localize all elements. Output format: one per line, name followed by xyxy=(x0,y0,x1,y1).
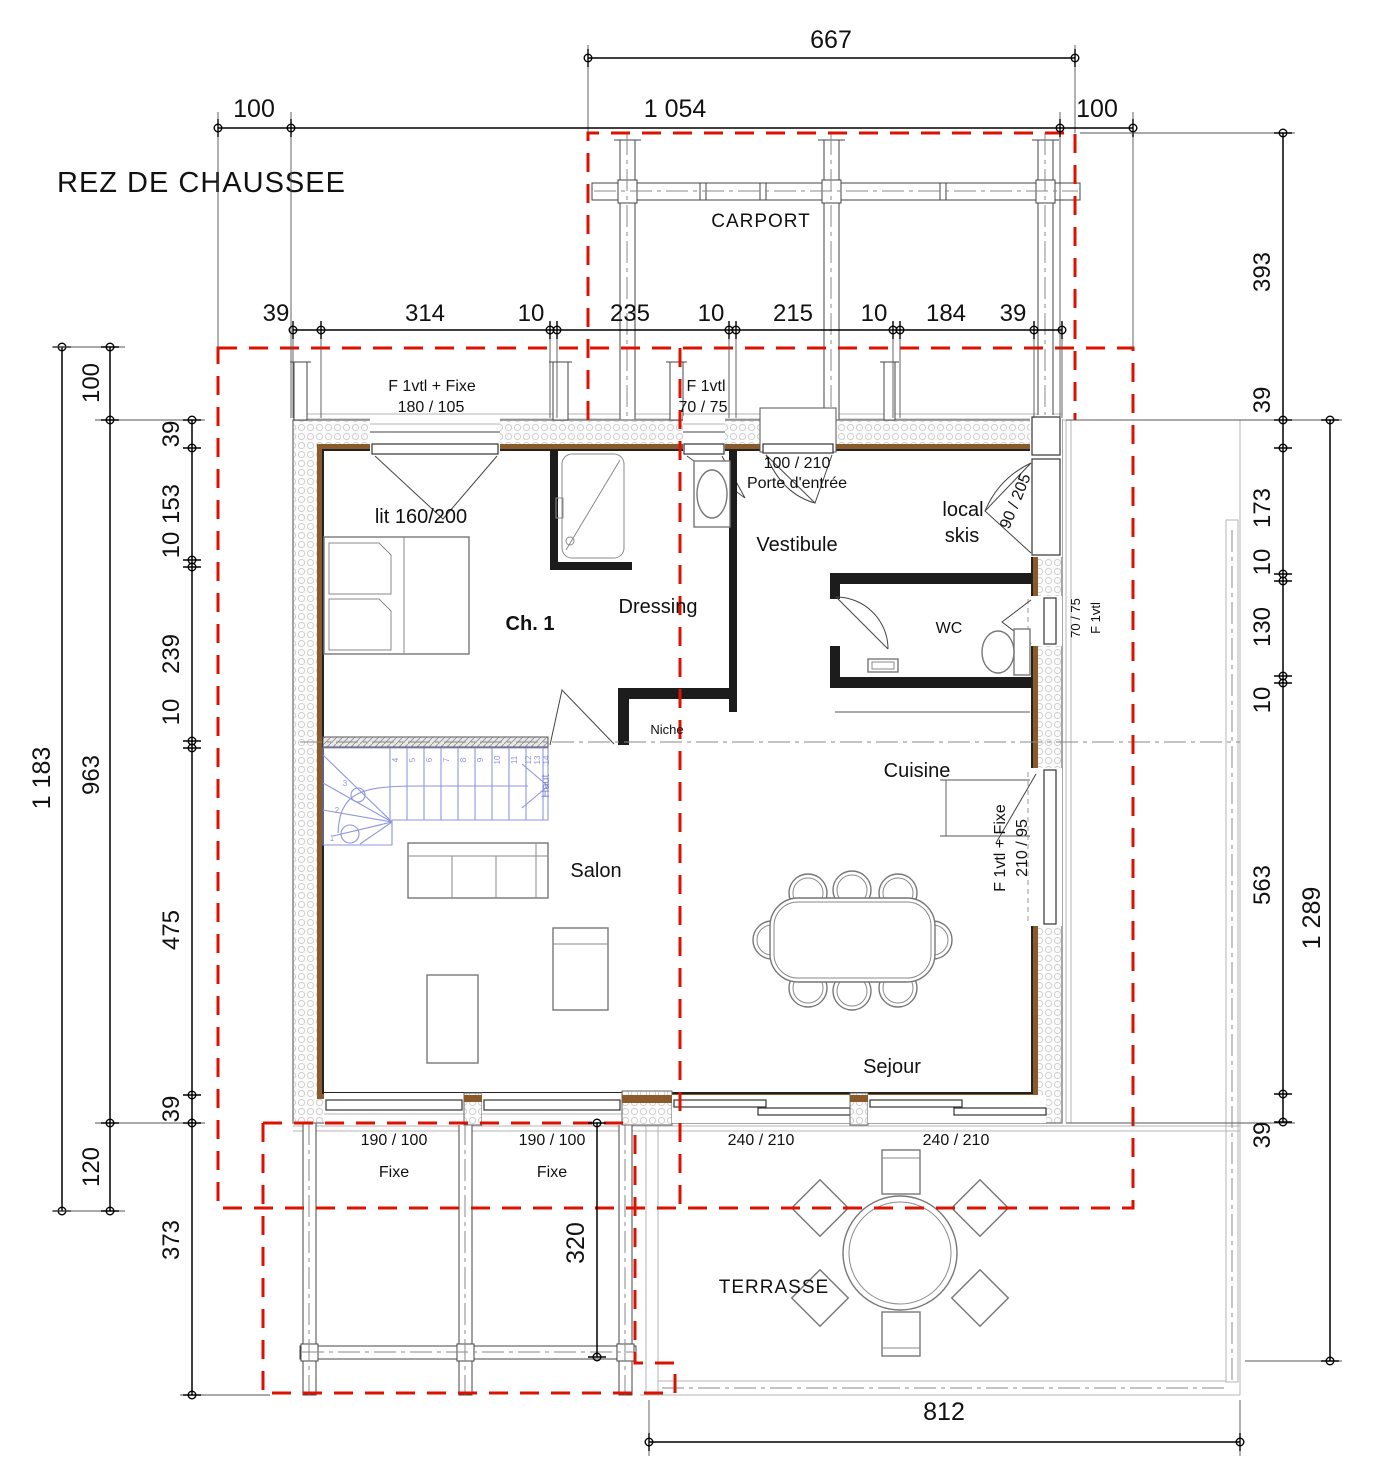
entrance-label-2: Porte d'entrée xyxy=(747,475,847,492)
svg-text:39: 39 xyxy=(1249,387,1276,414)
bed-label: lit 160/200 xyxy=(375,506,467,528)
svg-text:12: 12 xyxy=(524,755,533,764)
room-label-salon: Salon xyxy=(570,860,621,882)
armchair xyxy=(553,928,608,1010)
dim-terrace-depth: 320 xyxy=(562,1119,606,1361)
sejour-bay-1-label: 240 / 210 xyxy=(728,1132,795,1149)
wall-post-3 xyxy=(850,1093,868,1125)
salon-window-1-label-2: Fixe xyxy=(379,1164,409,1181)
svg-text:4: 4 xyxy=(391,757,400,762)
svg-text:9: 9 xyxy=(476,757,485,762)
room-label-cuisine: Cuisine xyxy=(884,760,951,782)
svg-text:7: 7 xyxy=(442,757,451,762)
dim-right-chain: 393 39 173 10 130 10 563 39 xyxy=(1066,129,1342,1148)
dim-left-chain: 39 153 10 239 10 475 39 373 xyxy=(158,416,270,1399)
bed xyxy=(324,537,469,654)
svg-text:1 289: 1 289 xyxy=(1298,887,1326,950)
svg-text:11: 11 xyxy=(510,755,519,764)
svg-text:10: 10 xyxy=(1249,549,1276,576)
svg-text:10: 10 xyxy=(493,755,502,764)
svg-text:1: 1 xyxy=(330,834,335,843)
svg-text:1 183: 1 183 xyxy=(28,747,56,810)
svg-text:6: 6 xyxy=(425,757,434,762)
wall-post-1 xyxy=(464,1093,482,1125)
dim-terrace-width: 812 xyxy=(645,1398,1244,1456)
svg-text:10: 10 xyxy=(158,699,185,726)
room-label-local-skis-2: skis xyxy=(945,525,979,547)
svg-text:130: 130 xyxy=(1249,607,1276,647)
wc-window-label-1: 70 / 75 xyxy=(1068,598,1083,638)
svg-text:100: 100 xyxy=(78,363,105,403)
wall-post-2 xyxy=(622,1091,672,1125)
svg-text:100: 100 xyxy=(233,95,275,123)
svg-text:120: 120 xyxy=(78,1147,105,1187)
svg-text:963: 963 xyxy=(78,755,105,795)
carport-structure xyxy=(592,133,1080,422)
sofa xyxy=(408,843,548,898)
svg-text:475: 475 xyxy=(158,910,185,950)
window-salon-1 xyxy=(324,1093,464,1125)
svg-text:10: 10 xyxy=(698,300,725,327)
window-ch1-label-2: 180 / 105 xyxy=(398,399,465,416)
svg-text:1 054: 1 054 xyxy=(644,95,707,123)
svg-text:215: 215 xyxy=(773,300,813,327)
svg-text:100: 100 xyxy=(1076,95,1118,123)
salon-window-2-label-2: Fixe xyxy=(537,1164,567,1181)
floor-plan: REZ DE CHAUSSEE xyxy=(0,0,1392,1480)
room-label-vestibule: Vestibule xyxy=(756,534,837,556)
svg-text:8: 8 xyxy=(459,757,468,762)
svg-text:373: 373 xyxy=(158,1220,185,1260)
svg-text:563: 563 xyxy=(1249,865,1276,905)
dim-left-mid: 100 963 120 xyxy=(52,343,205,1215)
room-label-sejour: Sejour xyxy=(863,1056,921,1078)
svg-text:5: 5 xyxy=(408,757,417,762)
salon-window-2-label-1: 190 / 100 xyxy=(519,1132,586,1149)
svg-text:39: 39 xyxy=(1249,1122,1276,1149)
bay-sejour-1 xyxy=(672,1095,850,1123)
svg-text:393: 393 xyxy=(1249,252,1276,292)
coffee-table xyxy=(427,975,478,1063)
svg-text:39: 39 xyxy=(263,300,290,327)
svg-text:153: 153 xyxy=(158,484,185,524)
svg-text:14: 14 xyxy=(542,755,551,764)
wc-shelf xyxy=(868,659,898,672)
svg-text:173: 173 xyxy=(1249,488,1276,528)
svg-text:2: 2 xyxy=(335,806,340,815)
svg-text:667: 667 xyxy=(810,26,852,54)
window-salon-2 xyxy=(482,1093,622,1125)
svg-text:39: 39 xyxy=(158,421,185,448)
washbasin xyxy=(694,461,730,527)
window-ski-fixed xyxy=(1030,415,1062,457)
wc-window-label-2: F 1vtl xyxy=(1088,602,1103,634)
stair-label-haut: Haut xyxy=(540,774,552,797)
room-label-ch1: Ch. 1 xyxy=(506,613,555,635)
terrace-table xyxy=(792,1150,1009,1356)
kitchen-window-label-1: F 1vtl + Fixe xyxy=(992,804,1009,892)
svg-text:39: 39 xyxy=(1000,300,1027,327)
svg-text:13: 13 xyxy=(533,755,542,764)
dim-top-chain: 39 314 10 235 10 215 10 184 39 xyxy=(263,300,1066,418)
window-ch1-label-1: F 1vtl + Fixe xyxy=(388,378,476,395)
svg-text:10: 10 xyxy=(518,300,545,327)
svg-text:3: 3 xyxy=(343,779,348,788)
svg-text:320: 320 xyxy=(562,1222,590,1264)
kitchen-window-label-2: 210 / 95 xyxy=(1014,819,1031,877)
svg-text:239: 239 xyxy=(158,634,185,674)
page-title: REZ DE CHAUSSEE xyxy=(57,167,346,199)
svg-text:812: 812 xyxy=(923,1398,965,1426)
room-label-carport: CARPORT xyxy=(711,211,811,232)
dim-left-total: 1 183 xyxy=(28,343,71,1215)
niche-label: Niche xyxy=(650,722,683,737)
room-label-wc: WC xyxy=(936,620,963,637)
svg-text:39: 39 xyxy=(158,1096,185,1123)
window-dressing-label-1: F 1vtl xyxy=(686,378,725,395)
room-label-local-skis-1: local xyxy=(942,499,983,521)
svg-text:184: 184 xyxy=(926,300,966,327)
entrance-label-1: 100 / 210 xyxy=(764,455,831,472)
room-label-terrasse: TERRASSE xyxy=(719,1277,829,1298)
sejour-bay-2-label: 240 / 210 xyxy=(923,1132,990,1149)
salon-window-1-label-1: 190 / 100 xyxy=(361,1132,428,1149)
room-label-dressing: Dressing xyxy=(619,596,698,618)
svg-text:235: 235 xyxy=(610,300,650,327)
bay-sejour-2 xyxy=(868,1095,1046,1123)
window-dressing-label-2: 70 / 75 xyxy=(679,399,728,416)
svg-text:10: 10 xyxy=(861,300,888,327)
svg-text:314: 314 xyxy=(405,300,445,327)
svg-text:10: 10 xyxy=(158,532,185,559)
toilet xyxy=(982,629,1030,675)
svg-text:10: 10 xyxy=(1249,687,1276,714)
